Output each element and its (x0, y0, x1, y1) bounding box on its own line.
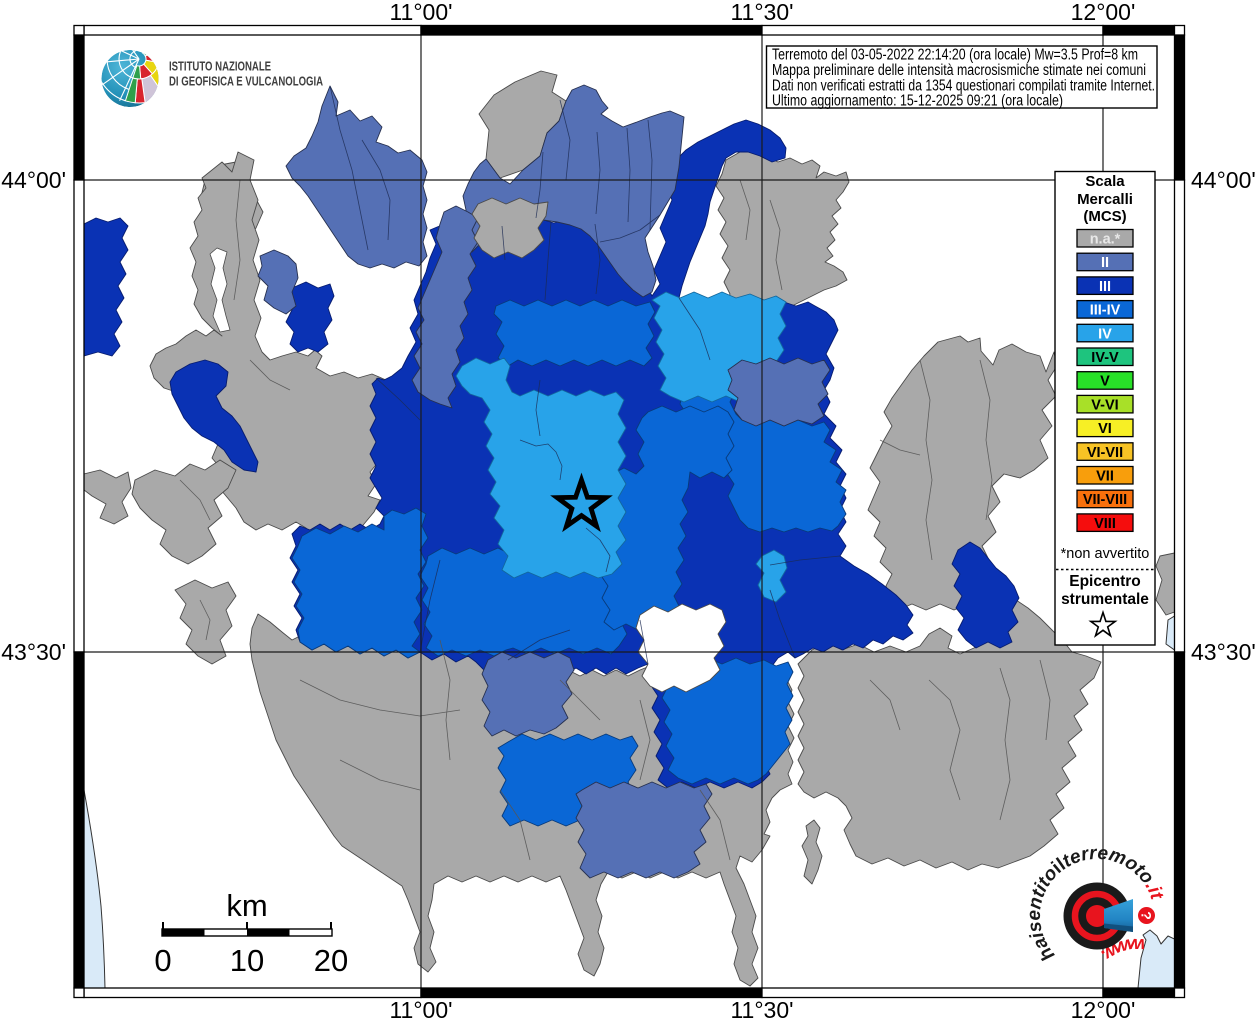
svg-text:10: 10 (230, 943, 264, 978)
svg-text:Mercalli: Mercalli (1077, 191, 1133, 208)
svg-text:VI-VII: VI-VII (1087, 445, 1123, 461)
svg-text:12°00': 12°00' (1071, 0, 1136, 25)
svg-text:44°00': 44°00' (1, 167, 66, 193)
svg-text:Ultimo aggiornamento: 15-12-20: Ultimo aggiornamento: 15-12-2025 09:21 (… (772, 93, 1063, 110)
svg-text:n.a.*: n.a.* (1090, 232, 1121, 248)
svg-text:?: ? (1139, 911, 1155, 920)
svg-text:VII-VIII: VII-VIII (1083, 492, 1127, 508)
svg-text:12°00': 12°00' (1071, 997, 1136, 1023)
svg-text:III: III (1099, 279, 1111, 295)
svg-text:0: 0 (154, 943, 171, 978)
svg-text:VII: VII (1096, 469, 1114, 485)
svg-text:DI GEOFISICA E VULCANOLOGIA: DI GEOFISICA E VULCANOLOGIA (169, 75, 323, 89)
svg-text:III-IV: III-IV (1090, 303, 1121, 319)
svg-text:11°00': 11°00' (389, 0, 452, 25)
svg-text:(MCS): (MCS) (1083, 208, 1126, 225)
svg-text:*non avvertito: *non avvertito (1061, 546, 1150, 562)
svg-text:Scala: Scala (1085, 173, 1125, 190)
svg-text:11°30': 11°30' (730, 997, 793, 1023)
svg-text:II: II (1101, 255, 1109, 271)
svg-text:V-VI: V-VI (1091, 397, 1118, 413)
svg-text:11°30': 11°30' (730, 0, 793, 25)
svg-text:20: 20 (314, 943, 348, 978)
svg-text:43°30': 43°30' (1191, 639, 1256, 665)
svg-text:Mappa preliminare delle intens: Mappa preliminare delle intensità macros… (772, 62, 1146, 79)
svg-text:VIII: VIII (1094, 516, 1116, 532)
svg-text:43°30': 43°30' (1, 639, 66, 665)
svg-text:Epicentro: Epicentro (1069, 573, 1140, 590)
svg-text:strumentale: strumentale (1061, 591, 1149, 608)
svg-text:km: km (226, 888, 267, 923)
svg-text:11°00': 11°00' (389, 997, 452, 1023)
svg-text:VI: VI (1098, 421, 1112, 437)
svg-text:ISTITUTO NAZIONALE: ISTITUTO NAZIONALE (169, 60, 271, 74)
svg-text:Terremoto del 03-05-2022 22:14: Terremoto del 03-05-2022 22:14:20 (ora l… (772, 47, 1138, 64)
svg-text:V: V (1100, 374, 1110, 390)
svg-text:IV: IV (1098, 326, 1112, 342)
svg-text:44°00': 44°00' (1191, 167, 1256, 193)
svg-text:IV-V: IV-V (1091, 350, 1119, 366)
